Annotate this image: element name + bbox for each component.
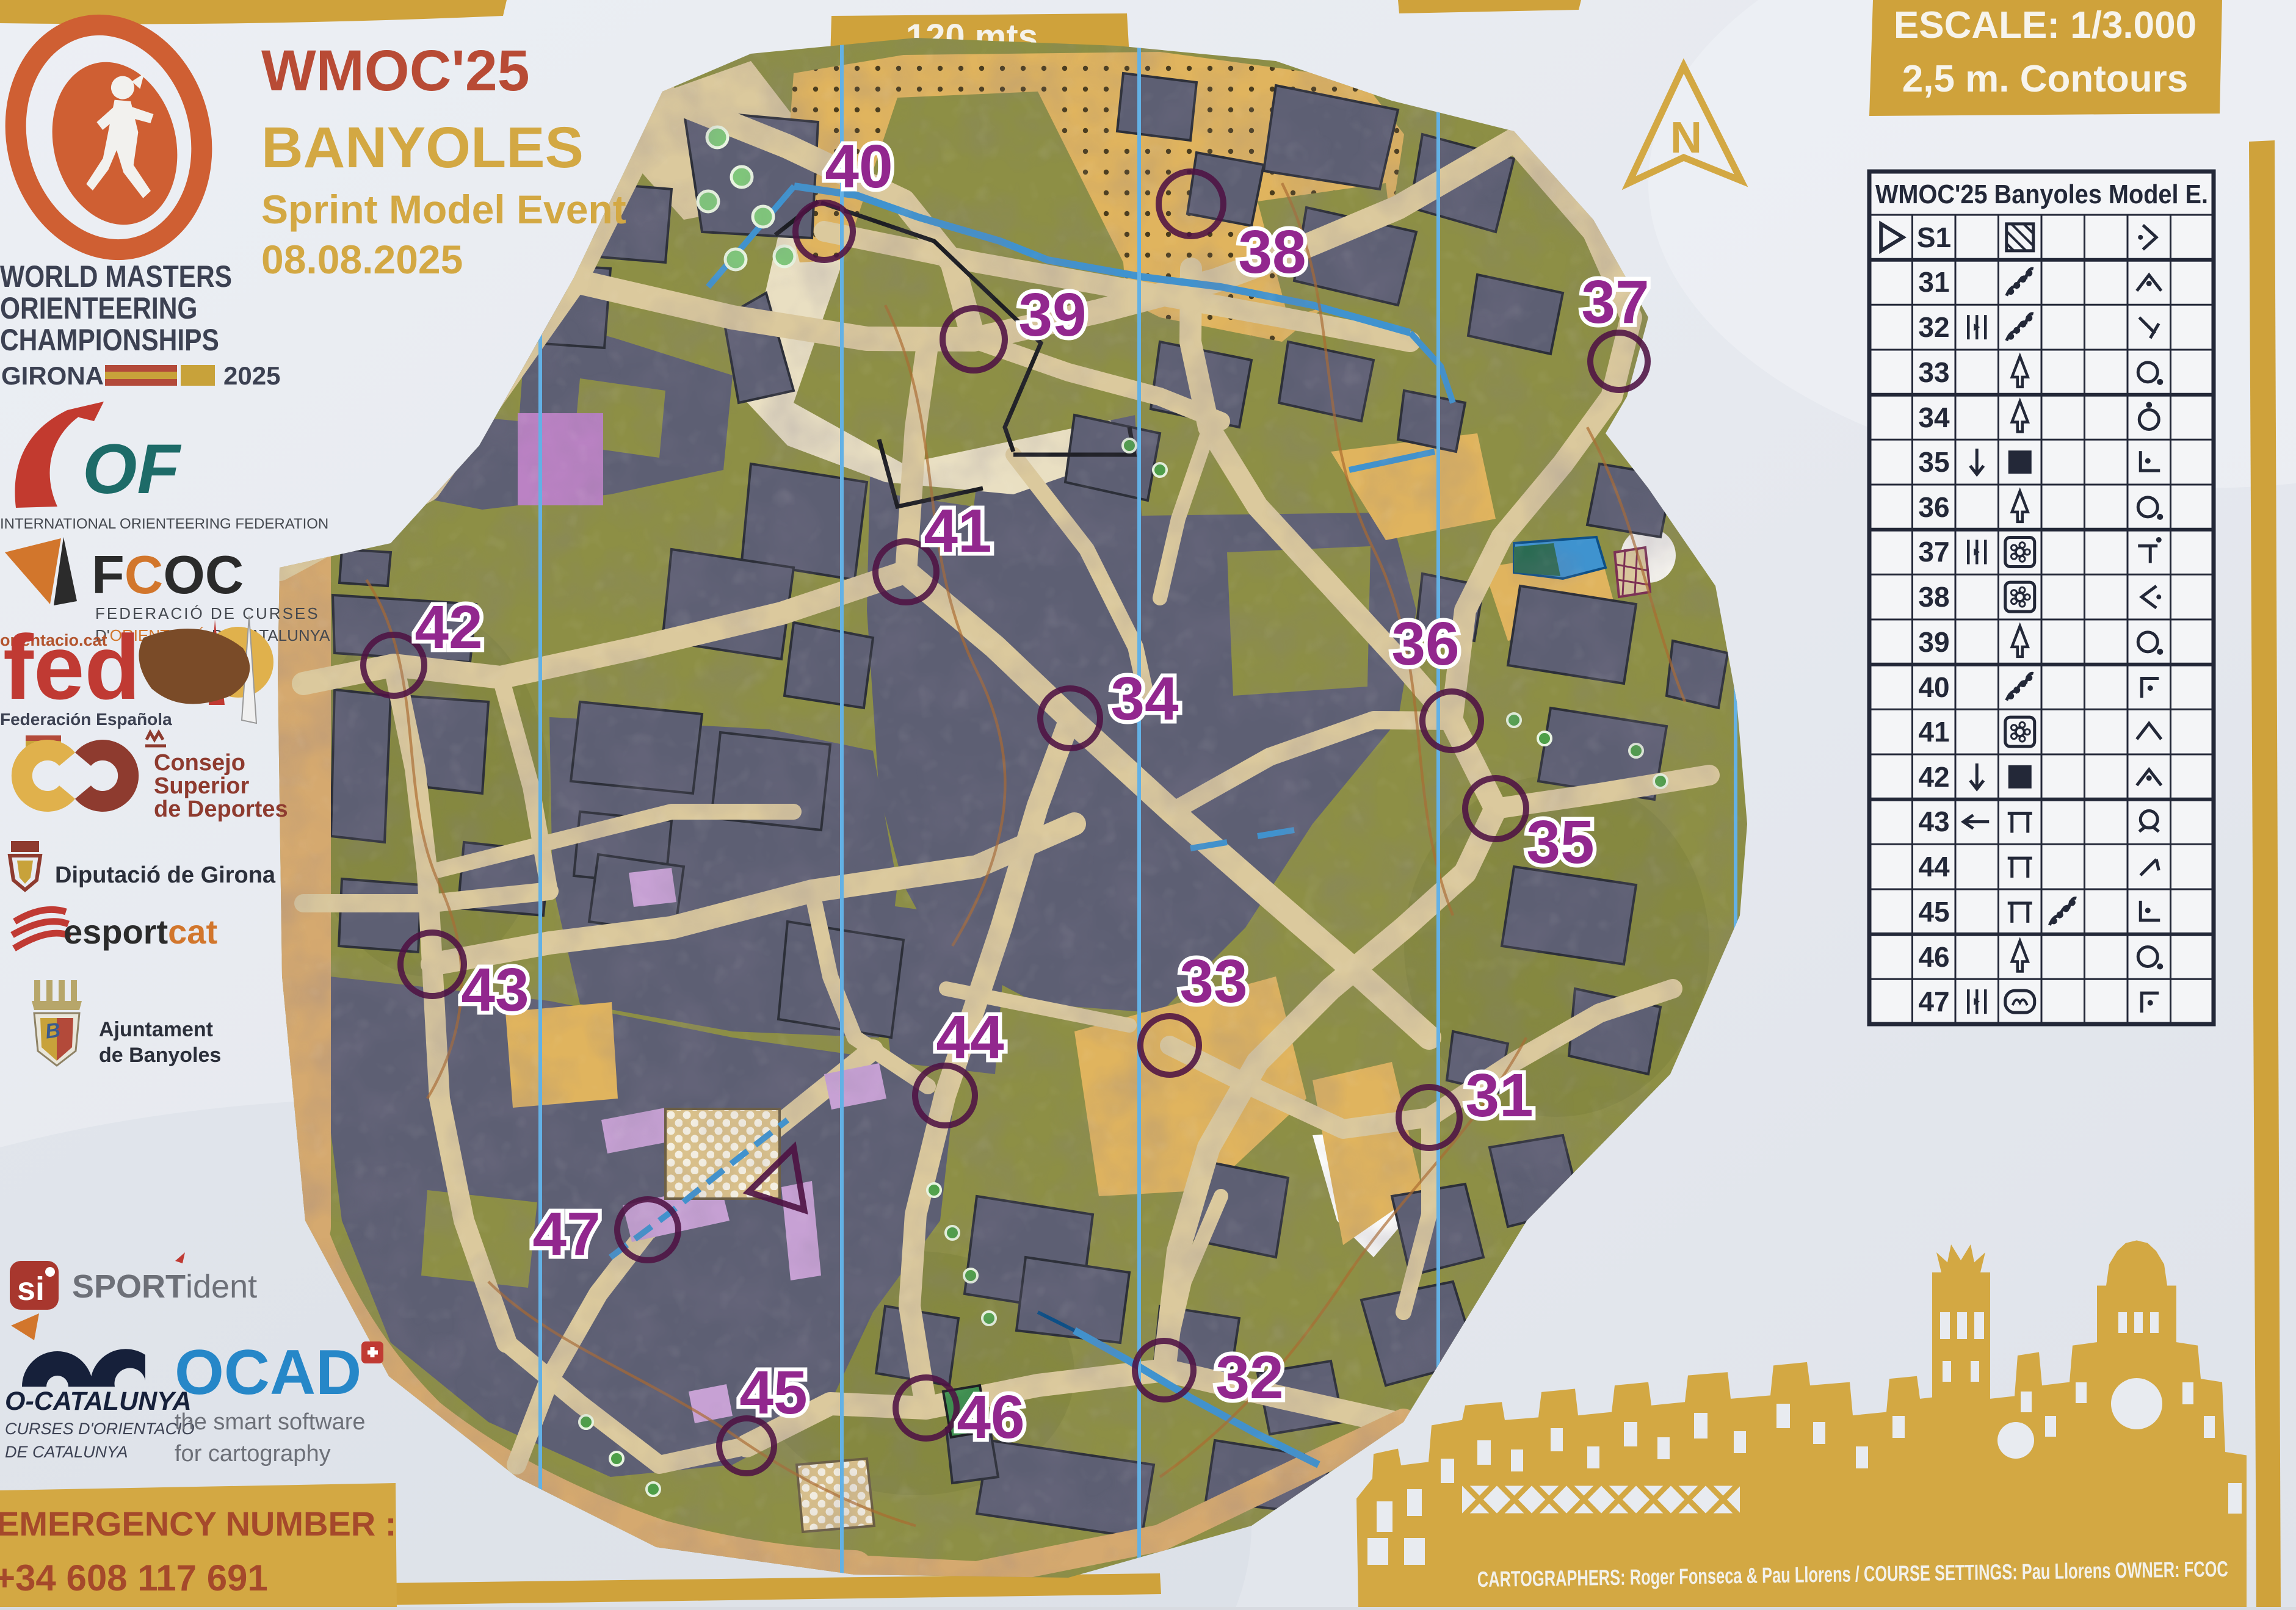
- svg-text:34: 34: [1918, 402, 1950, 433]
- svg-text:40: 40: [1918, 671, 1949, 703]
- svg-text:OCAD: OCAD: [175, 1337, 361, 1408]
- svg-text:41: 41: [1918, 716, 1949, 748]
- svg-text:BANYOLES: BANYOLES: [261, 115, 584, 180]
- svg-text:33: 33: [1918, 356, 1949, 388]
- svg-text:Superior: Superior: [154, 773, 249, 799]
- svg-text:Ajuntament: Ajuntament: [99, 1018, 213, 1041]
- svg-text:40: 40: [825, 132, 893, 201]
- svg-text:GIRONA: GIRONA: [1, 361, 104, 390]
- svg-text:42: 42: [1918, 761, 1949, 793]
- svg-text:39: 39: [1918, 626, 1949, 658]
- svg-text:ORIENTEERING: ORIENTEERING: [0, 291, 197, 325]
- svg-text:Consejo: Consejo: [154, 750, 245, 776]
- svg-text:35: 35: [1526, 808, 1594, 876]
- svg-text:31: 31: [1918, 266, 1949, 298]
- svg-text:46: 46: [1918, 941, 1949, 973]
- svg-text:EMERGENCY NUMBER :: EMERGENCY NUMBER :: [0, 1504, 396, 1543]
- svg-text:WORLD MASTERS: WORLD MASTERS: [0, 259, 232, 294]
- svg-text:47: 47: [532, 1200, 600, 1268]
- svg-text:46: 46: [957, 1383, 1024, 1451]
- svg-text:08.08.2025: 08.08.2025: [261, 237, 463, 282]
- svg-text:45: 45: [739, 1359, 807, 1427]
- svg-text:44: 44: [936, 1003, 1004, 1072]
- svg-text:+34 608 117 691: +34 608 117 691: [0, 1558, 268, 1598]
- svg-text:de Deportes: de Deportes: [154, 796, 288, 822]
- svg-text:45: 45: [1918, 896, 1949, 928]
- svg-text:Federación Española: Federación Española: [0, 710, 172, 729]
- svg-text:ESCALE: 1/3.000: ESCALE: 1/3.000: [1894, 4, 2196, 46]
- svg-text:DE CATALUNYA: DE CATALUNYA: [5, 1443, 128, 1461]
- svg-text:INTERNATIONAL ORIENTEERING FED: INTERNATIONAL ORIENTEERING FEDERATION: [0, 516, 328, 532]
- svg-text:32: 32: [1918, 311, 1949, 343]
- svg-text:37: 37: [1581, 268, 1649, 336]
- svg-text:si: si: [17, 1271, 45, 1307]
- svg-text:36: 36: [1391, 610, 1459, 678]
- svg-text:44: 44: [1918, 851, 1950, 883]
- svg-text:SPORTident: SPORTident: [72, 1268, 257, 1305]
- svg-text:43: 43: [461, 956, 529, 1024]
- svg-text:for cartography: for cartography: [175, 1441, 331, 1467]
- svg-text:38: 38: [1238, 218, 1306, 286]
- svg-text:36: 36: [1918, 491, 1949, 523]
- svg-text:esportcat: esportcat: [63, 912, 217, 951]
- svg-text:47: 47: [1918, 986, 1949, 1017]
- svg-text:Diputació de Girona: Diputació de Girona: [55, 862, 276, 888]
- svg-text:39: 39: [1018, 281, 1086, 349]
- svg-text:42: 42: [415, 593, 482, 662]
- svg-text:B: B: [44, 1019, 62, 1044]
- svg-text:43: 43: [1918, 806, 1949, 837]
- svg-text:CURSES D'ORIENTACIÓ: CURSES D'ORIENTACIÓ: [5, 1419, 195, 1438]
- svg-text:Sprint Model Event: Sprint Model Event: [261, 187, 626, 232]
- svg-text:35: 35: [1918, 446, 1949, 478]
- svg-text:2,5 m. Contours: 2,5 m. Contours: [1902, 58, 2189, 100]
- svg-text:WMOC'25 Banyoles Model E.: WMOC'25 Banyoles Model E.: [1875, 179, 2208, 209]
- svg-text:34: 34: [1110, 665, 1179, 733]
- svg-text:2025: 2025: [223, 361, 280, 390]
- svg-text:37: 37: [1918, 536, 1949, 568]
- svg-text:31: 31: [1465, 1061, 1533, 1130]
- svg-text:33: 33: [1179, 947, 1247, 1016]
- svg-text:CHAMPIONSHIPS: CHAMPIONSHIPS: [0, 323, 219, 357]
- svg-text:the smart software: the smart software: [175, 1409, 366, 1435]
- svg-text:FCOC: FCOC: [92, 544, 244, 605]
- svg-text:41: 41: [924, 497, 991, 565]
- svg-text:S1: S1: [1917, 222, 1951, 253]
- svg-text:WMOC'25: WMOC'25: [261, 38, 530, 103]
- svg-text:O-CATALUNYA: O-CATALUNYA: [5, 1387, 192, 1416]
- svg-text:OF: OF: [82, 430, 181, 508]
- svg-text:38: 38: [1918, 581, 1949, 613]
- svg-text:fed: fed: [3, 616, 140, 718]
- svg-text:32: 32: [1215, 1343, 1283, 1412]
- svg-text:N: N: [1670, 114, 1702, 162]
- svg-text:de Banyoles: de Banyoles: [99, 1044, 221, 1067]
